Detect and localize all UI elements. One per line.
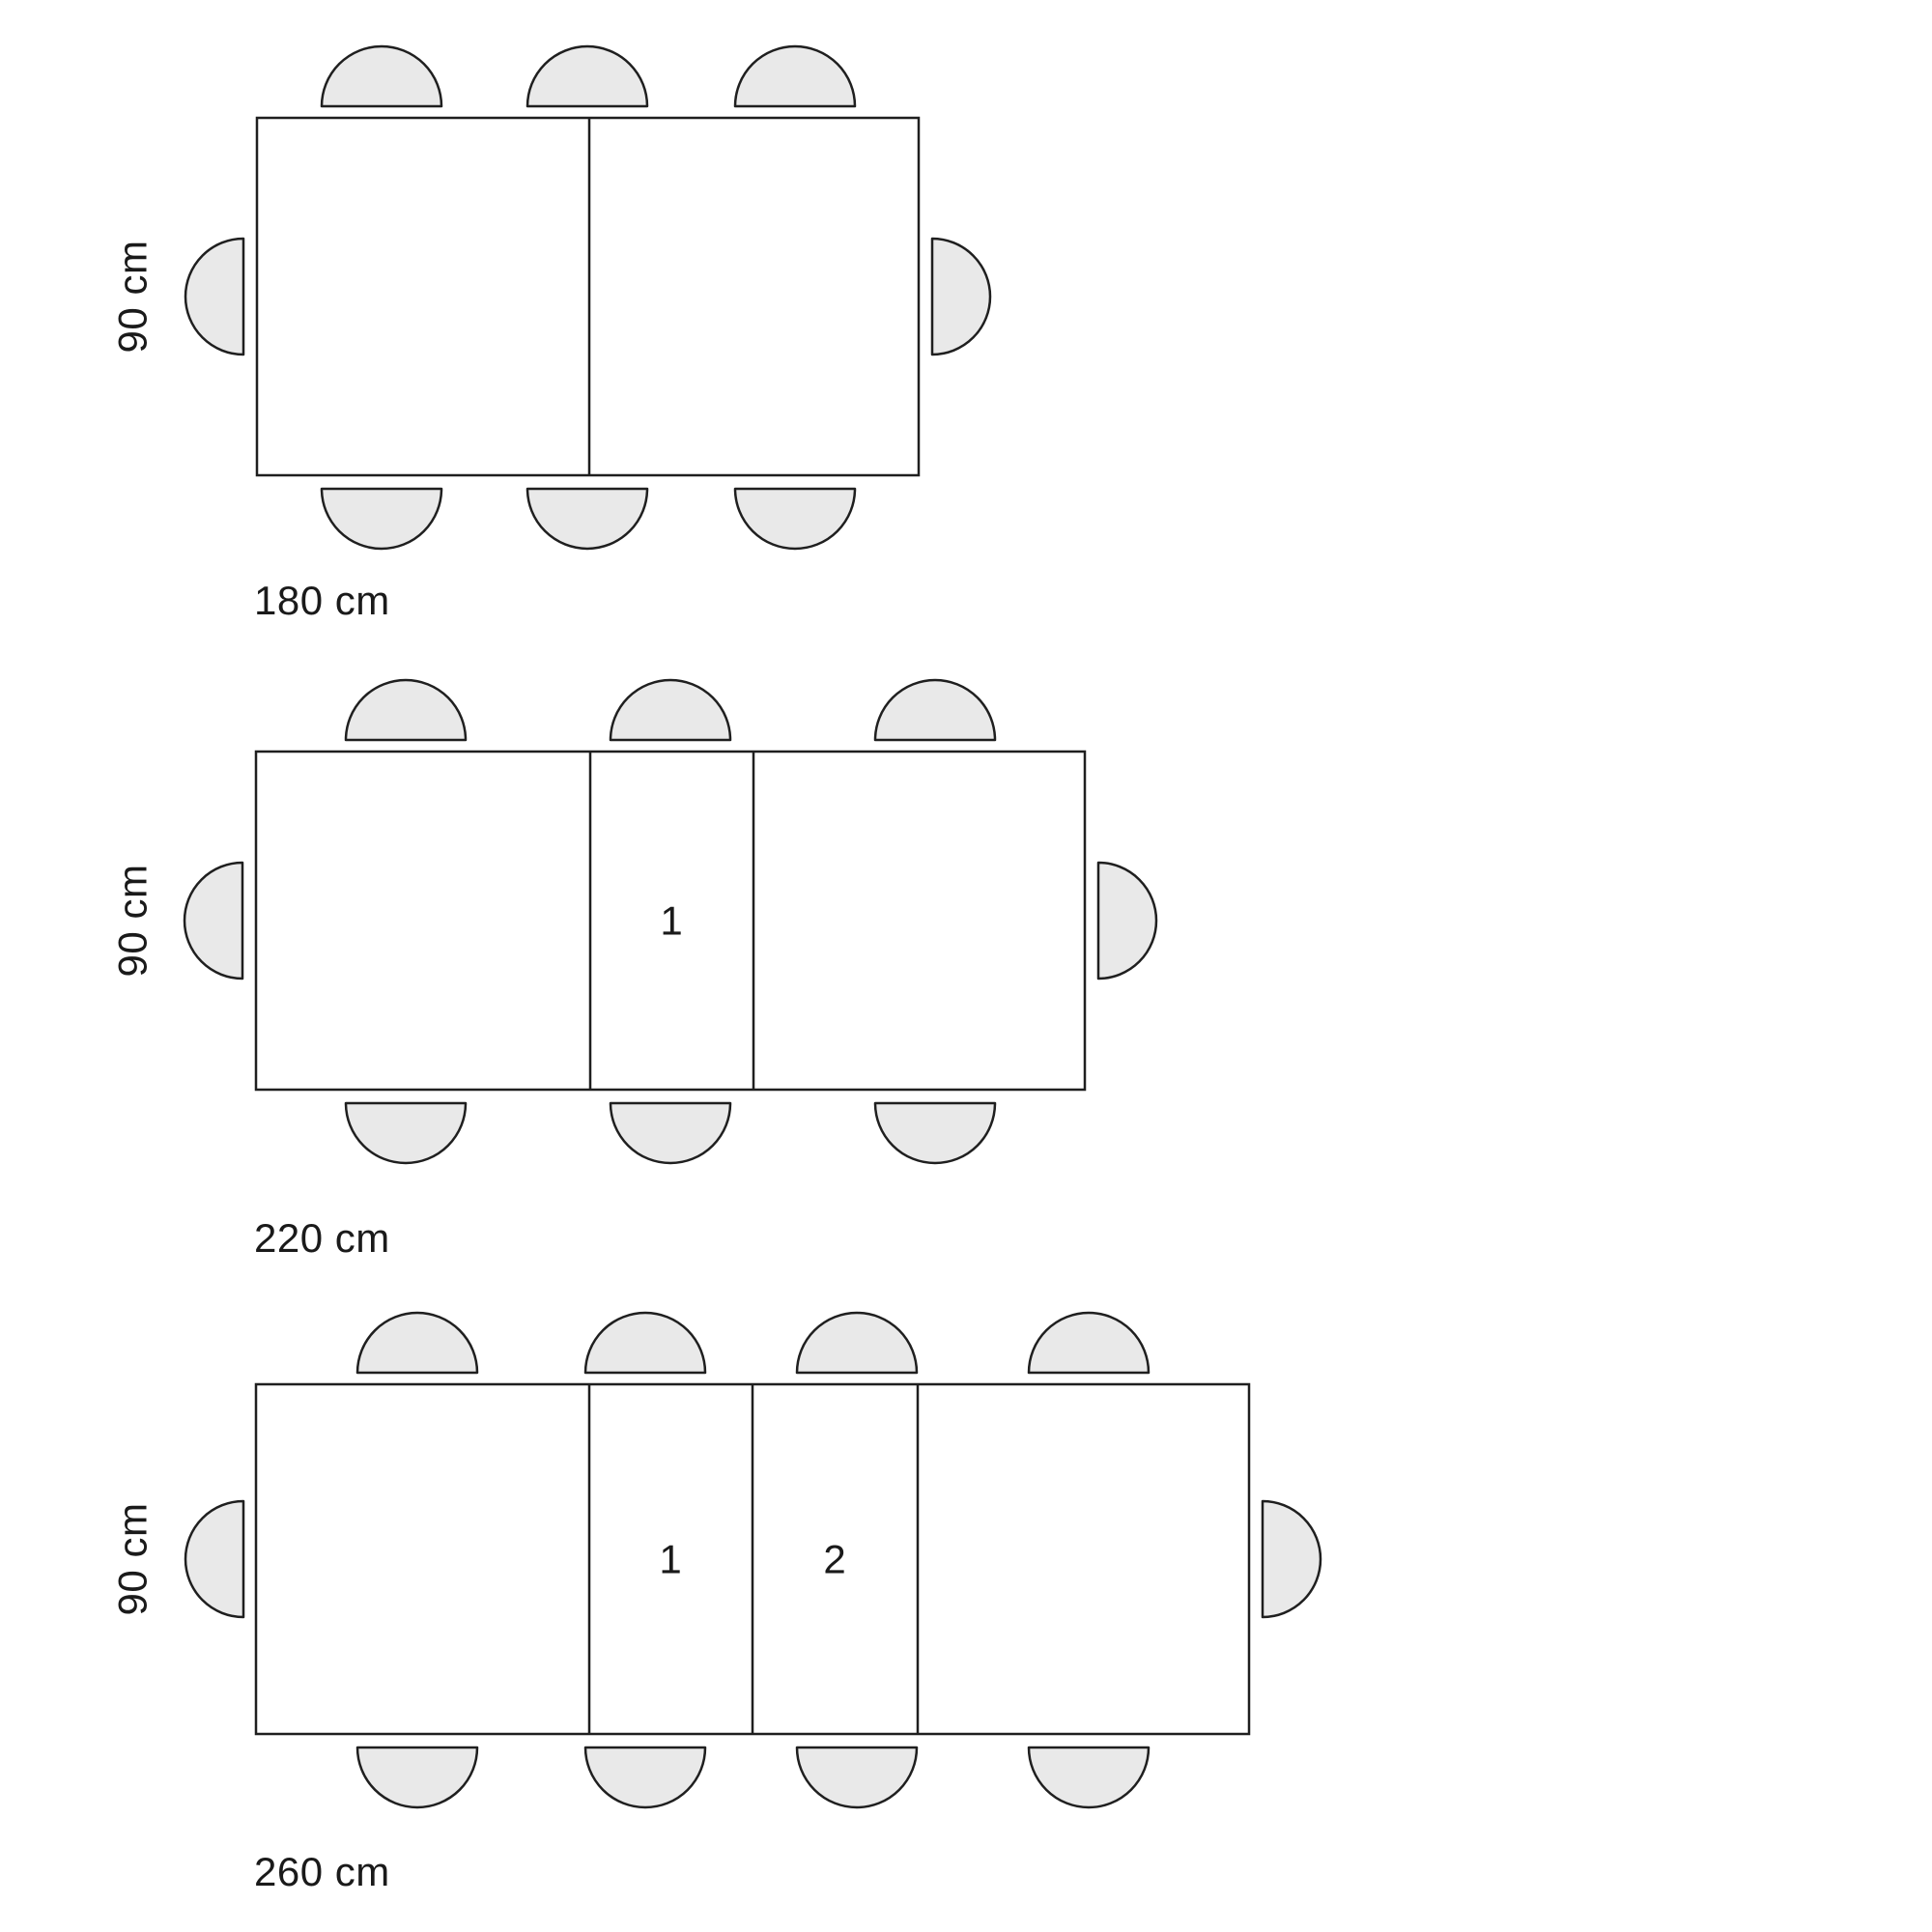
diagram-table-220: 1 90 cm 220 cm — [110, 680, 1156, 1261]
chair-icon — [185, 1501, 243, 1617]
table-extension-diagrams: 90 cm 180 cm 1 90 cm 220 cm — [0, 0, 1932, 1932]
chair-icon — [932, 239, 990, 355]
width-dimension-label: 220 cm — [254, 1215, 390, 1261]
leaf-number-label: 1 — [660, 898, 682, 944]
diagram-table-180: 90 cm 180 cm — [110, 46, 990, 623]
width-dimension-label: 180 cm — [254, 578, 390, 623]
leaf-number-label: 2 — [823, 1537, 845, 1582]
chair-icon — [585, 1747, 705, 1807]
table-top-180 — [257, 118, 919, 475]
width-dimension-label: 260 cm — [254, 1849, 390, 1894]
chair-icon — [185, 239, 243, 355]
chair-icon — [611, 1103, 730, 1163]
diagram-table-260: 1 2 90 cm 260 cm — [110, 1313, 1321, 1894]
chair-icon — [1029, 1747, 1149, 1807]
chair-icon — [322, 46, 441, 106]
chair-icon — [735, 46, 855, 106]
chair-icon — [1029, 1313, 1149, 1373]
chair-icon — [1263, 1501, 1321, 1617]
chair-icon — [875, 680, 995, 740]
chair-icon — [611, 680, 730, 740]
chair-icon — [735, 489, 855, 549]
chair-icon — [797, 1747, 917, 1807]
chair-icon — [346, 680, 466, 740]
chair-icon — [346, 1103, 466, 1163]
chair-icon — [357, 1747, 477, 1807]
chair-icon — [527, 46, 647, 106]
chair-icon — [797, 1313, 917, 1373]
chair-icon — [585, 1313, 705, 1373]
depth-dimension-label: 90 cm — [110, 1503, 156, 1616]
table-size-diagram-page: 90 cm 180 cm 1 90 cm 220 cm — [0, 0, 1932, 1932]
chair-icon — [357, 1313, 477, 1373]
depth-dimension-label: 90 cm — [110, 241, 156, 354]
leaf-number-label: 1 — [659, 1537, 681, 1582]
chair-icon — [185, 863, 242, 979]
depth-dimension-label: 90 cm — [110, 865, 156, 978]
chair-icon — [322, 489, 441, 549]
chair-icon — [875, 1103, 995, 1163]
chair-icon — [527, 489, 647, 549]
chair-icon — [1098, 863, 1156, 979]
